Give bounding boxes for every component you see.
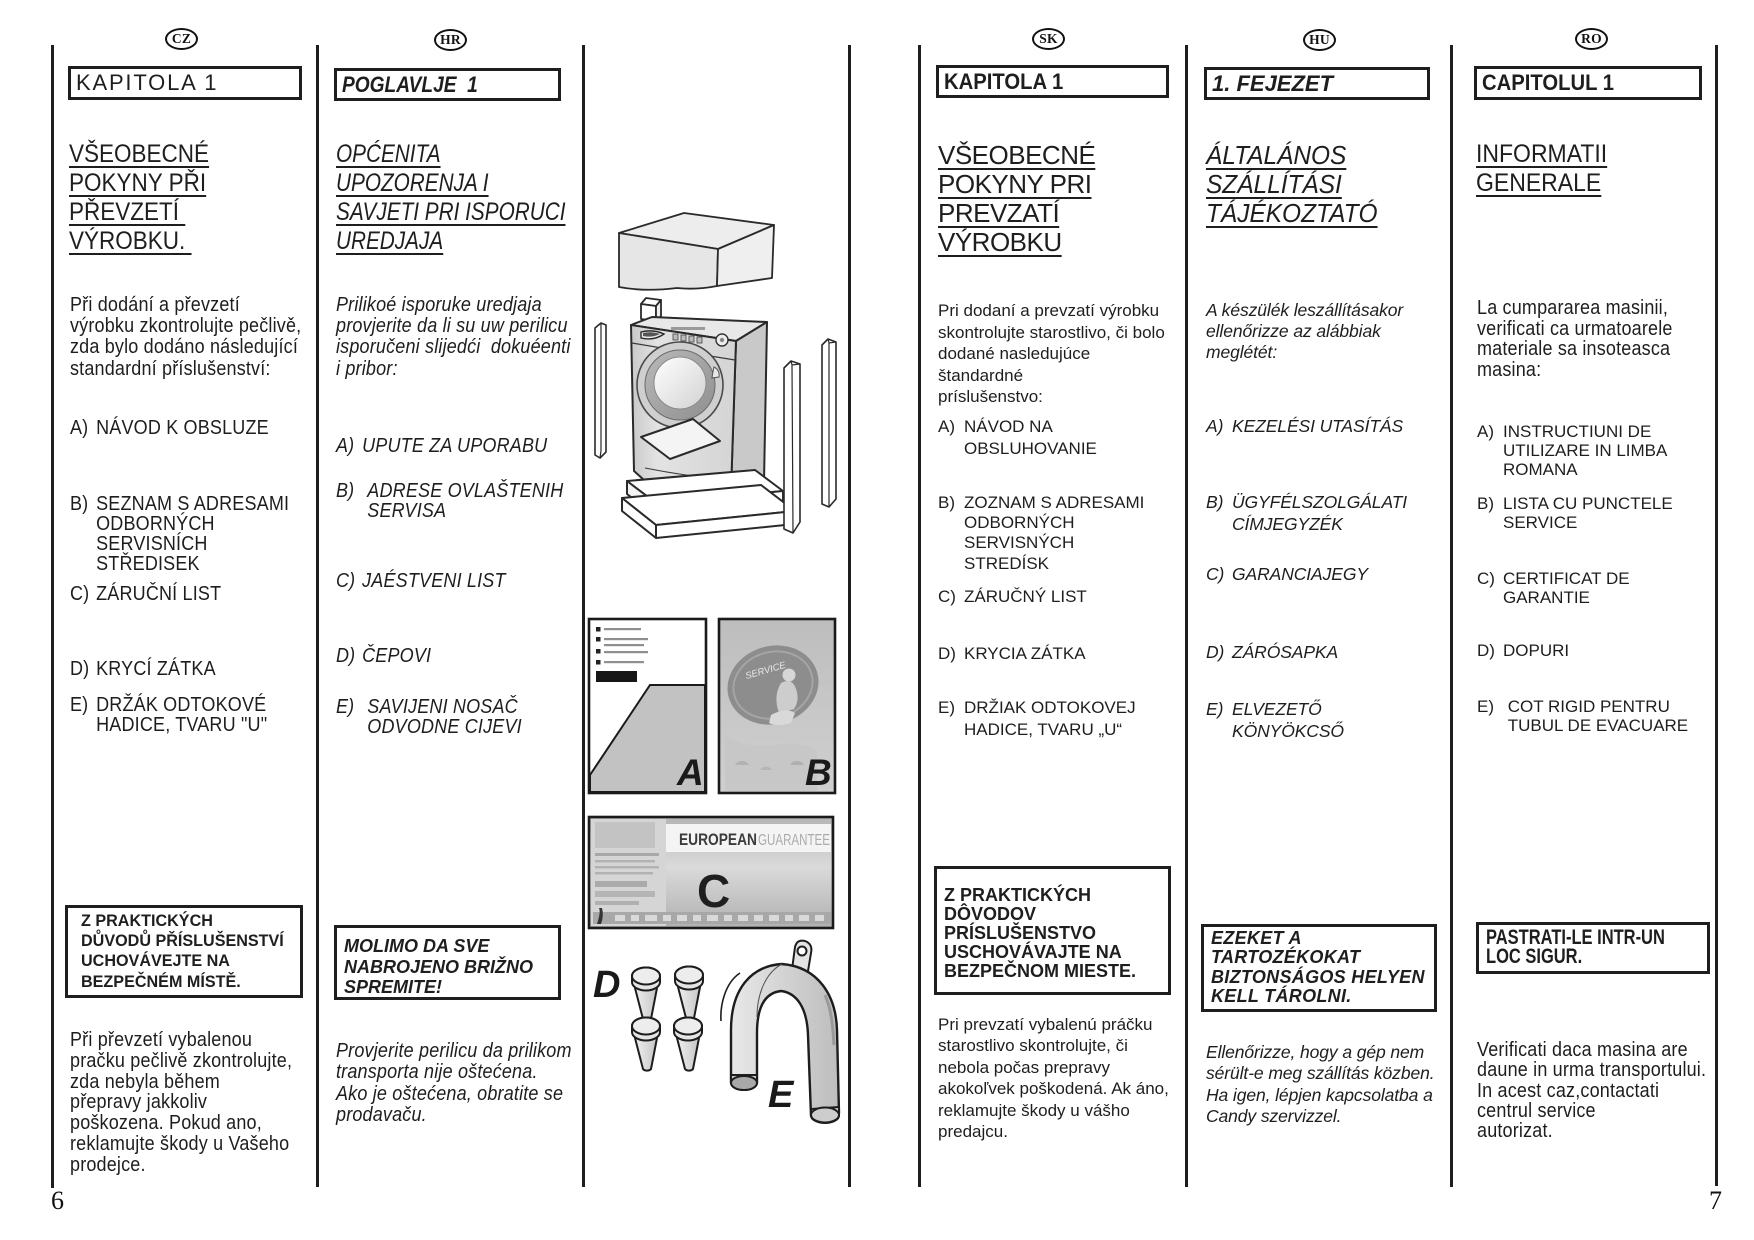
svg-text:A: A [676, 752, 704, 793]
svg-text:E: E [768, 1074, 795, 1116]
svg-text:GUARANTEE: GUARANTEE [758, 832, 830, 849]
svg-text:B: B [805, 752, 832, 793]
svg-text:D: D [593, 964, 620, 1006]
svg-text:EUROPEAN: EUROPEAN [679, 830, 757, 849]
svg-text:C: C [697, 865, 730, 917]
